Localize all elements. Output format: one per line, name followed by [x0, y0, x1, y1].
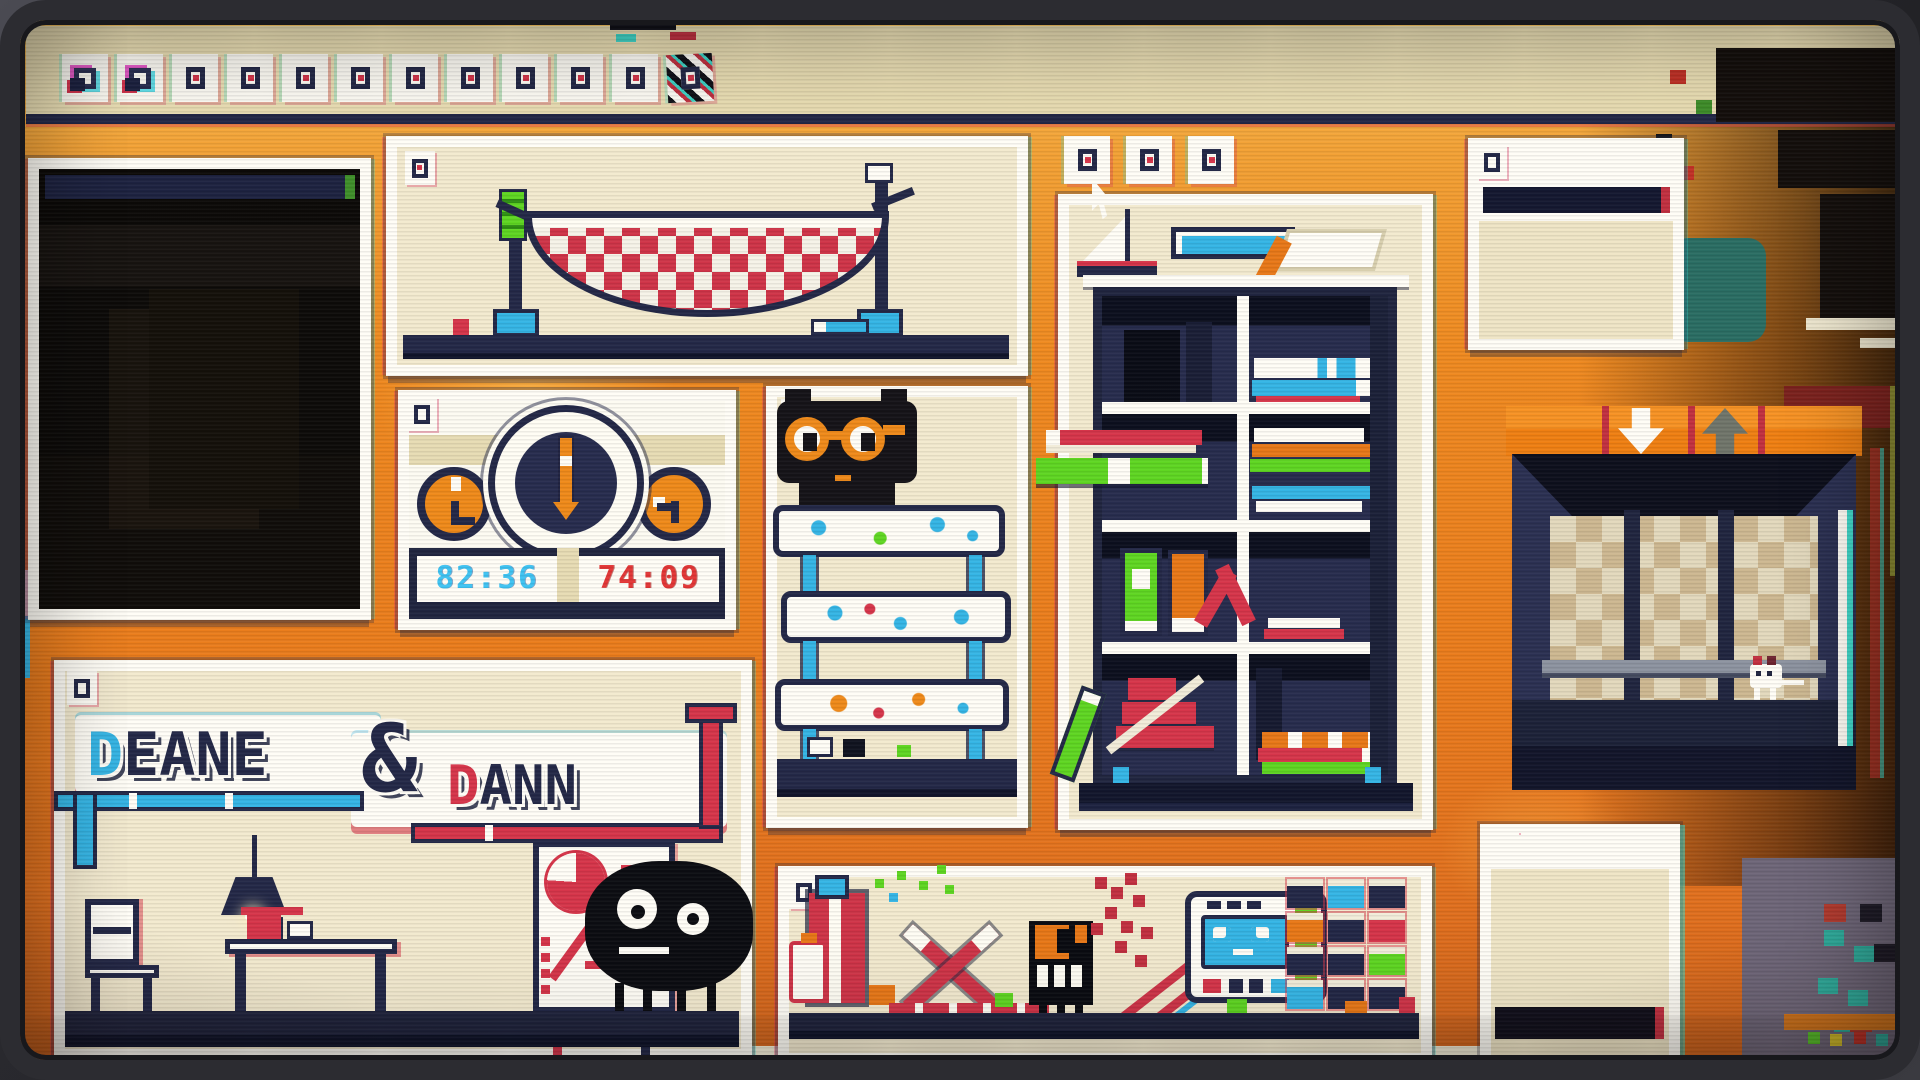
shelf-foot-cyan [1113, 767, 1129, 783]
creature-eye [1767, 671, 1772, 676]
photo-stack-icon [129, 68, 151, 89]
crt-game-screen: { "screen_type": "retro-pixel-room-build… [0, 0, 1920, 1080]
books-dark-block [1124, 330, 1180, 402]
glitch-white-dash [1806, 318, 1902, 330]
cassette-eye [1251, 927, 1269, 942]
frame-icon [1140, 149, 1159, 171]
cyan-pipe-coupling [129, 793, 137, 809]
books-small-white-row [1268, 618, 1340, 628]
toolbar-icon-frame[interactable] [447, 54, 493, 102]
books-red-line [1256, 396, 1360, 402]
frame-icon-dot [468, 75, 474, 81]
red-pipe-coupling [485, 825, 493, 841]
book-label-square [1132, 569, 1150, 589]
blank-window-bottom-cap [1655, 1007, 1664, 1039]
creature-leg [707, 983, 716, 1013]
glitch-pixel [1670, 70, 1686, 84]
orange-box [869, 985, 895, 1005]
frame-icon [1078, 149, 1097, 171]
toolbar-icon-frame[interactable] [227, 54, 273, 102]
photo-stack-icon-back [70, 78, 85, 91]
elevator-stripe [1688, 406, 1695, 456]
frame-icon-dot [578, 75, 584, 81]
book-navy [1186, 322, 1212, 402]
glitch-dark-pixel [1860, 904, 1882, 922]
toolbar-icon-frame[interactable] [612, 54, 658, 102]
black-creature [585, 861, 755, 1021]
cyan-pipe-elbow [73, 791, 97, 869]
frame-icon-dot [1147, 157, 1153, 163]
confetti [875, 879, 884, 888]
bookshelf-frame [1093, 287, 1397, 784]
grid-block-red [1369, 913, 1405, 942]
logo-ampersand: & [361, 713, 418, 807]
sailboat-mast [1125, 209, 1130, 265]
frame-icon [1202, 149, 1221, 171]
bookshelf-base [1079, 783, 1413, 811]
photo-stack-icon [74, 68, 96, 89]
glitch-block [1716, 48, 1902, 122]
desk-leg [235, 954, 246, 1014]
main-clock-pendulum-gap [560, 456, 572, 466]
cassette-eye [1213, 927, 1231, 942]
frame-icon-dot [248, 75, 254, 81]
frame-icon-dot [358, 75, 364, 81]
grid-block [1287, 947, 1323, 976]
creature-mouth [619, 947, 669, 954]
floppy-chip-orange [1075, 925, 1087, 943]
green-block [995, 993, 1013, 1007]
creature-body [585, 861, 753, 991]
frame-icon [516, 67, 535, 89]
blank-window-top-right[interactable] [1468, 138, 1684, 350]
bottle-cap [801, 933, 817, 943]
books-blue-row [1252, 380, 1376, 396]
cat [777, 389, 937, 519]
frame-icon-dot [687, 75, 693, 81]
frame-icon [414, 405, 430, 424]
elevator-stripe [1602, 406, 1609, 456]
chair-seat [85, 965, 159, 978]
floor-item-pallet [811, 319, 869, 335]
clock-display-right: 74:09 [579, 556, 719, 600]
chair [85, 899, 165, 1015]
frame-icon [351, 67, 370, 89]
frame-icon-dot [417, 165, 422, 170]
main-clock-pendulum [560, 438, 572, 502]
grid-block-green [1369, 947, 1405, 976]
book-green-label [1120, 548, 1162, 636]
grid-block-orange [1287, 913, 1323, 942]
workshop-window[interactable] [778, 866, 1432, 1062]
cat-bunk-window[interactable] [766, 386, 1028, 828]
elevator-post [1624, 510, 1640, 702]
books-small-red-row [1264, 629, 1344, 639]
books-stack-green [1250, 459, 1376, 472]
toolbar-icon-photo-stack[interactable] [62, 54, 108, 102]
elevator-floor [1512, 700, 1856, 746]
books-stack-white [1254, 428, 1364, 442]
desk-top [225, 939, 397, 954]
clock-hand-hour [657, 503, 675, 511]
book-green-protruding [1036, 458, 1208, 484]
grid-block [1369, 879, 1405, 908]
frame-icon-dot [1085, 157, 1091, 163]
logo-word-deane: DEANE [87, 725, 268, 785]
whiteboard-square [541, 985, 550, 994]
studio-window[interactable]: DEANE & DANN [54, 660, 752, 1060]
glitch-block [1778, 130, 1902, 188]
hammock-tie-right [865, 163, 893, 183]
toolbar-icon-frame[interactable] [502, 54, 548, 102]
window-icon [407, 397, 437, 431]
book-red-protruding [1046, 430, 1202, 445]
chair-leg [143, 978, 152, 1015]
shelf-top-papers [1275, 229, 1387, 271]
creature-pupil-left [631, 905, 645, 919]
grid-block [1328, 913, 1364, 942]
main-clock [488, 405, 644, 561]
shelf-side-column [1370, 296, 1388, 775]
bookshelf-button-frame[interactable] [1126, 136, 1172, 184]
window-icon [1477, 145, 1507, 179]
blank-window-title-cap [1661, 187, 1670, 213]
elevator-creature [1750, 664, 1782, 688]
cassette-button-navy [1229, 979, 1243, 993]
cat-pupil-right [861, 433, 875, 451]
toolbar-icon-frame[interactable] [172, 54, 218, 102]
chair-leg [91, 978, 100, 1015]
books-stack-orange [1252, 444, 1370, 457]
block-grid [1287, 879, 1405, 1009]
dark-photo-window[interactable] [28, 158, 371, 620]
desk-book-red [247, 915, 281, 939]
frame-icon [296, 67, 315, 89]
elevator-rail [1542, 660, 1826, 673]
floppy-teeth [1037, 965, 1085, 987]
frame-icon-dot [523, 75, 529, 81]
shelf-top-board [1083, 275, 1409, 287]
cassette-smile [1233, 949, 1253, 955]
cassette-screen [1201, 915, 1289, 969]
logo-word-dann: DANN [447, 759, 577, 813]
books-bottom-orange [1262, 732, 1376, 748]
red-pipe-joint [685, 703, 737, 723]
glitch-red-fringe [1870, 448, 1880, 778]
grid-block-cyan [1287, 980, 1323, 1009]
creature-leg [615, 983, 624, 1013]
books-white-blue-row [1254, 358, 1372, 378]
frame-icon [406, 67, 425, 89]
photo-window-title-cap [345, 175, 355, 199]
floppy-slot [1057, 929, 1069, 953]
photo-room-doorway [149, 289, 299, 509]
books-stack-white2 [1256, 501, 1362, 512]
mini-clock-left [417, 467, 491, 541]
cassette-button-navy [1249, 979, 1263, 993]
bunk-base-item-dark [843, 739, 865, 757]
floor-bit-red [1399, 997, 1415, 1013]
workshop-floor [789, 1013, 1419, 1039]
photo-window-title-bar [45, 175, 345, 199]
blank-window-bottom-right[interactable] [1480, 824, 1680, 1062]
bunk-base [777, 759, 1017, 789]
chair-back-slat [93, 927, 131, 934]
glitch-olive-line [1890, 386, 1896, 576]
glitch-pixel [616, 34, 636, 42]
frame-icon [186, 67, 205, 89]
screen: 82:36 74:09 [18, 18, 1902, 1062]
mini-clock-right [637, 467, 711, 541]
lamp-cord [252, 835, 257, 879]
clock-display-left-box: 82:36 [417, 556, 557, 602]
whiteboard-square [541, 937, 550, 946]
window-icon [67, 671, 97, 705]
cat-glasses-temple [883, 425, 905, 435]
frame-icon [680, 67, 700, 90]
cyan-pipe-coupling [225, 793, 233, 809]
glitch-line-cyan [1847, 510, 1853, 746]
frame-icon-dot [303, 75, 309, 81]
bunk-leg [969, 555, 982, 593]
blank-window-title-bar [1483, 187, 1661, 213]
sailboat-sail [1083, 215, 1127, 261]
studio-floor [65, 1011, 739, 1047]
bunk-tier-2 [781, 591, 1011, 643]
cat-glasses-bridge [827, 431, 843, 440]
desk-book-white [287, 921, 313, 939]
frame-icon [626, 67, 645, 89]
desk-leg [375, 954, 386, 1014]
bunk-tier-3 [775, 679, 1009, 731]
cat-pupil-left [803, 433, 817, 451]
elevator-ceiling [1512, 454, 1856, 518]
glitch-orange-row [1784, 1014, 1902, 1030]
hammock-base-left [493, 309, 539, 337]
glitch-block [1820, 194, 1902, 322]
toolbar-icon-frame-selected[interactable] [666, 53, 714, 103]
glitch-pixel [610, 18, 676, 30]
glitch-pixel [670, 32, 696, 40]
cyan-pipe-horizontal [54, 791, 364, 811]
red-splatter [1095, 877, 1107, 889]
window-icon [405, 151, 435, 185]
creature-ear [1767, 656, 1776, 665]
blank-window-body [1479, 221, 1673, 339]
wall-shadow-bottom-right [1742, 858, 1902, 1062]
desk [225, 911, 405, 1015]
creature-ear [1753, 656, 1762, 665]
floppy-creature [1029, 921, 1099, 1025]
elevator-stripe [1758, 406, 1765, 456]
bunk-base-item-white [807, 737, 833, 757]
bottle [789, 941, 827, 1003]
frame-icon-dot [193, 75, 199, 81]
whiteboard-square [541, 969, 550, 978]
tower-cyan-box [815, 875, 849, 899]
photo-stack-icon-back [125, 78, 140, 91]
glitch-cyan-edge [22, 616, 30, 678]
bookshelf-window[interactable] [1058, 194, 1433, 830]
frame-icon-dot [1209, 157, 1215, 163]
bunk-base-item-green [897, 745, 911, 757]
glitch-teal-pixel [1824, 930, 1844, 946]
elevator-header [1506, 406, 1862, 456]
elevator-pit [1512, 746, 1856, 790]
bunk-leg [803, 641, 816, 681]
blank-window-bottom-bar [1495, 1007, 1655, 1039]
toolbar-icon-frame[interactable] [282, 54, 328, 102]
frame-icon [74, 679, 90, 698]
creature-pupil-right [687, 913, 699, 925]
logo-dann-rest: ANN [480, 754, 578, 817]
frame-icon [571, 67, 590, 89]
clock-window[interactable]: 82:36 74:09 [398, 390, 736, 630]
books-bottom-green [1262, 762, 1372, 774]
toolbar-icon-frame[interactable] [337, 54, 383, 102]
bunk-tier-1 [773, 505, 1005, 557]
elevator-cab [1512, 454, 1856, 790]
books-bottom-red [1258, 748, 1380, 762]
red-pipe-elbow-up [699, 717, 723, 829]
cassette-top-dashes [1207, 901, 1265, 909]
grid-block-cyan [1328, 879, 1364, 908]
glitch-white-dash [1860, 338, 1902, 348]
creature-eye [1756, 671, 1761, 676]
logo-deane-rest: EANE [123, 720, 268, 790]
frame-icon [241, 67, 260, 89]
hammock-floor [403, 335, 1009, 353]
elevator-shaft [1506, 406, 1862, 790]
glitch-teal-blob [1670, 238, 1766, 342]
desk-board-red [241, 907, 303, 915]
clock-hand-hour [455, 517, 475, 525]
grid-block [1328, 947, 1364, 976]
creature-tail [1780, 680, 1804, 685]
clock-tick [451, 477, 461, 491]
logo-dann-initial: D [447, 754, 480, 817]
bunk-leg [969, 641, 982, 681]
logo-deane-initial: D [87, 720, 123, 790]
shelf-foot-cyan [1365, 767, 1381, 783]
books-stack-cyan [1252, 486, 1374, 499]
hammock-canvas [525, 211, 889, 317]
glitch-line-white [1838, 510, 1847, 746]
toolbar-icon-photo-stack[interactable] [117, 54, 163, 102]
whiteboard-square [541, 953, 550, 962]
clock-display-gap [557, 548, 579, 602]
frame-icon-dot [633, 75, 639, 81]
book-pages-protruding [1046, 445, 1196, 453]
blank-window-top-band [1491, 835, 1669, 869]
glitch-cyan-line [1880, 448, 1884, 778]
toolbar-icon-frame[interactable] [557, 54, 603, 102]
cassette-button-red [1203, 979, 1221, 993]
glitch-confetti-row [1808, 1032, 1820, 1044]
clock-display-strip: 82:36 74:09 [409, 548, 725, 619]
rail-red [889, 1003, 1049, 1013]
elevator-post [1718, 510, 1734, 702]
bunk-leg [803, 555, 816, 593]
frame-icon [1484, 153, 1500, 172]
frame-icon [461, 67, 480, 89]
clock-display-right-box: 74:09 [579, 556, 719, 602]
frame-icon-dot [413, 75, 419, 81]
clock-display-left: 82:36 [417, 556, 557, 600]
toolbar-divider [26, 114, 1902, 124]
floor-bit-green [1227, 999, 1247, 1013]
grid-block [1287, 879, 1323, 908]
bookshelf-button-frame[interactable] [1064, 136, 1110, 184]
hammock-window[interactable] [386, 136, 1028, 376]
red-pipe-horizontal [411, 823, 723, 843]
toolbar-icon-frame[interactable] [392, 54, 438, 102]
bookshelf-button-frame[interactable] [1188, 136, 1234, 184]
floor-item-red [453, 319, 469, 335]
